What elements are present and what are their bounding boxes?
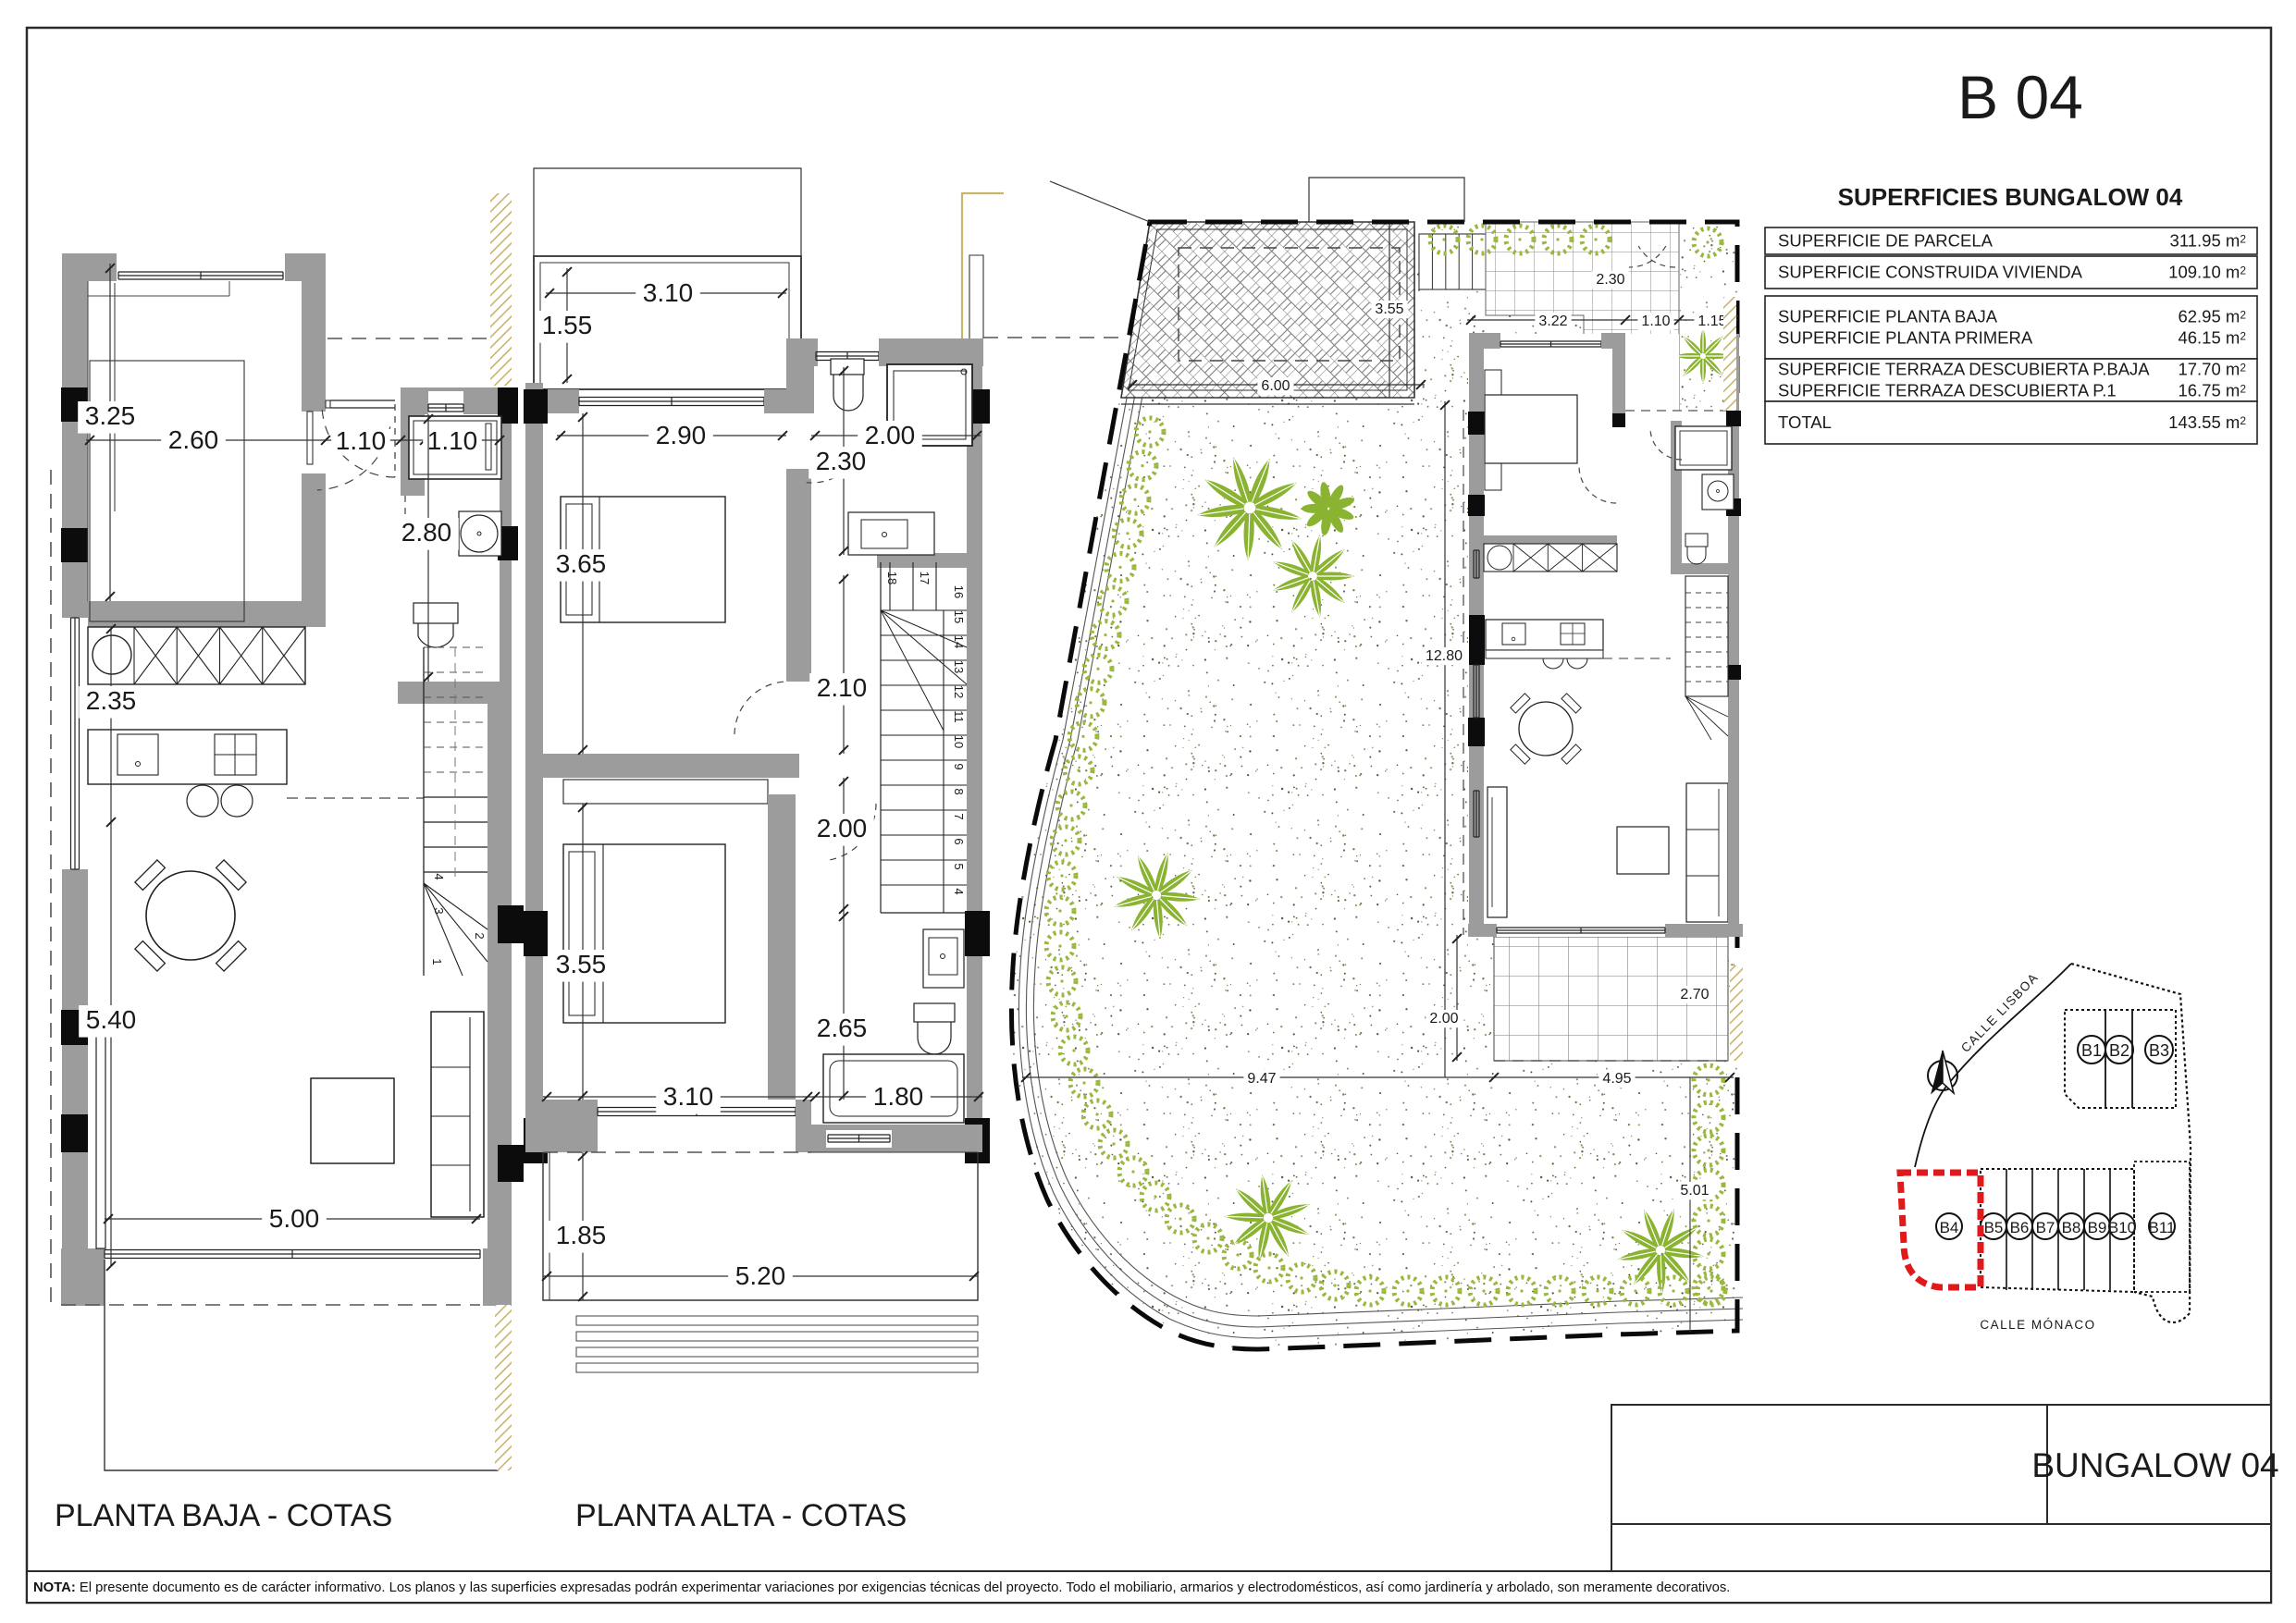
svg-text:B3: B3 [2149,1041,2169,1060]
svg-text:BUNGALOW 04: BUNGALOW 04 [2031,1446,2278,1484]
svg-text:11: 11 [952,710,966,723]
svg-text:B5: B5 [1984,1219,2004,1236]
svg-text:1.10: 1.10 [1641,314,1670,329]
svg-text:3.10: 3.10 [643,278,694,307]
svg-text:1: 1 [430,958,444,965]
svg-text:B10: B10 [2108,1219,2136,1236]
svg-text:2.00: 2.00 [1429,1011,1458,1027]
svg-text:B9: B9 [2088,1219,2107,1236]
svg-text:SUPERFICIE PLANTA PRIMERA: SUPERFICIE PLANTA PRIMERA [1778,328,2033,348]
svg-text:5.00: 5.00 [269,1204,320,1233]
svg-text:13: 13 [952,660,966,673]
svg-text:62.95 m2: 62.95 m2 [2178,307,2246,326]
svg-text:12: 12 [952,685,966,698]
svg-text:SUPERFICIE DE PARCELA: SUPERFICIE DE PARCELA [1778,231,1994,251]
svg-text:B7: B7 [2036,1219,2055,1236]
svg-text:SUPERFICIES BUNGALOW 04: SUPERFICIES BUNGALOW 04 [1838,183,2183,211]
svg-text:2.00: 2.00 [865,421,916,449]
svg-text:2: 2 [473,932,487,939]
svg-text:16.75 m2: 16.75 m2 [2178,381,2246,400]
svg-text:143.55 m2: 143.55 m2 [2168,412,2246,432]
svg-text:2.60: 2.60 [168,425,219,454]
svg-text:3: 3 [432,907,446,914]
svg-text:B11: B11 [2149,1219,2176,1236]
svg-text:46.15 m2: 46.15 m2 [2178,328,2246,348]
svg-text:3.10: 3.10 [663,1082,714,1111]
svg-text:9: 9 [952,763,966,769]
svg-text:2.10: 2.10 [817,673,868,702]
svg-text:2.30: 2.30 [1596,272,1624,288]
svg-text:109.10 m2: 109.10 m2 [2168,263,2246,282]
svg-text:B1: B1 [2081,1041,2102,1060]
svg-text:311.95 m2: 311.95 m2 [2170,231,2247,251]
svg-text:7: 7 [952,813,966,819]
svg-text:5.40: 5.40 [86,1005,137,1034]
svg-text:4: 4 [432,873,446,879]
svg-text:18: 18 [885,572,899,584]
svg-text:PLANTA ALTA - COTAS: PLANTA ALTA - COTAS [575,1498,907,1533]
svg-text:17.70 m2: 17.70 m2 [2178,360,2246,379]
svg-text:17: 17 [918,572,932,584]
svg-text:SUPERFICIE TERRAZA DESCUBIERTA: SUPERFICIE TERRAZA DESCUBIERTA P.1 [1778,381,2117,400]
svg-text:16: 16 [952,585,966,598]
svg-text:B8: B8 [2062,1219,2081,1236]
svg-text:CALLE MÓNACO: CALLE MÓNACO [1980,1318,2095,1332]
svg-text:2.00: 2.00 [817,814,868,842]
svg-text:5.20: 5.20 [735,1261,786,1290]
svg-text:5: 5 [952,863,966,869]
svg-text:1.55: 1.55 [542,311,593,339]
svg-text:2.30: 2.30 [816,447,867,475]
svg-text:15: 15 [952,610,966,623]
svg-text:SUPERFICIE CONSTRUIDA VIVIENDA: SUPERFICIE CONSTRUIDA VIVIENDA [1778,263,2083,282]
svg-text:2.90: 2.90 [656,421,707,449]
svg-text:8: 8 [952,788,966,794]
svg-text:2.70: 2.70 [1680,987,1709,1002]
svg-text:4.95: 4.95 [1602,1071,1631,1087]
svg-text:3.55: 3.55 [1375,301,1403,317]
svg-text:1.15: 1.15 [1697,314,1726,329]
svg-text:9.47: 9.47 [1247,1071,1276,1087]
svg-text:B2: B2 [2109,1041,2129,1060]
svg-text:12.80: 12.80 [1426,648,1463,664]
svg-text:3.65: 3.65 [556,549,607,578]
svg-text:4: 4 [952,888,966,894]
svg-text:14: 14 [952,635,966,648]
svg-text:SUPERFICIE TERRAZA DESCUBIERTA: SUPERFICIE TERRAZA DESCUBIERTA P.BAJA [1778,360,2150,379]
svg-text:3.22: 3.22 [1538,314,1567,329]
svg-text:3.25: 3.25 [85,401,136,430]
svg-text:5.01: 5.01 [1680,1183,1709,1199]
svg-text:PLANTA BAJA - COTAS: PLANTA BAJA - COTAS [55,1498,392,1533]
svg-text:6.00: 6.00 [1261,378,1290,394]
svg-text:3.55: 3.55 [556,950,607,978]
svg-text:TOTAL: TOTAL [1778,412,1832,432]
svg-text:B6: B6 [2010,1219,2030,1236]
svg-text:SUPERFICIE PLANTA BAJA: SUPERFICIE PLANTA BAJA [1778,307,1998,326]
svg-text:2.35: 2.35 [86,686,137,715]
svg-text:2.80: 2.80 [401,518,452,547]
svg-text:1.85: 1.85 [556,1221,607,1249]
svg-text:1.80: 1.80 [873,1082,924,1111]
svg-text:2.65: 2.65 [817,1014,868,1042]
svg-text:1.10: 1.10 [427,426,478,455]
svg-text:6: 6 [952,838,966,844]
svg-text:B 04: B 04 [1957,63,2083,131]
svg-text:NOTA: El presente documento e: NOTA: El presente documento es de caráct… [33,1580,1730,1595]
svg-text:10: 10 [952,735,966,748]
svg-text:1.10: 1.10 [336,426,387,455]
svg-text:B4: B4 [1940,1219,1959,1236]
